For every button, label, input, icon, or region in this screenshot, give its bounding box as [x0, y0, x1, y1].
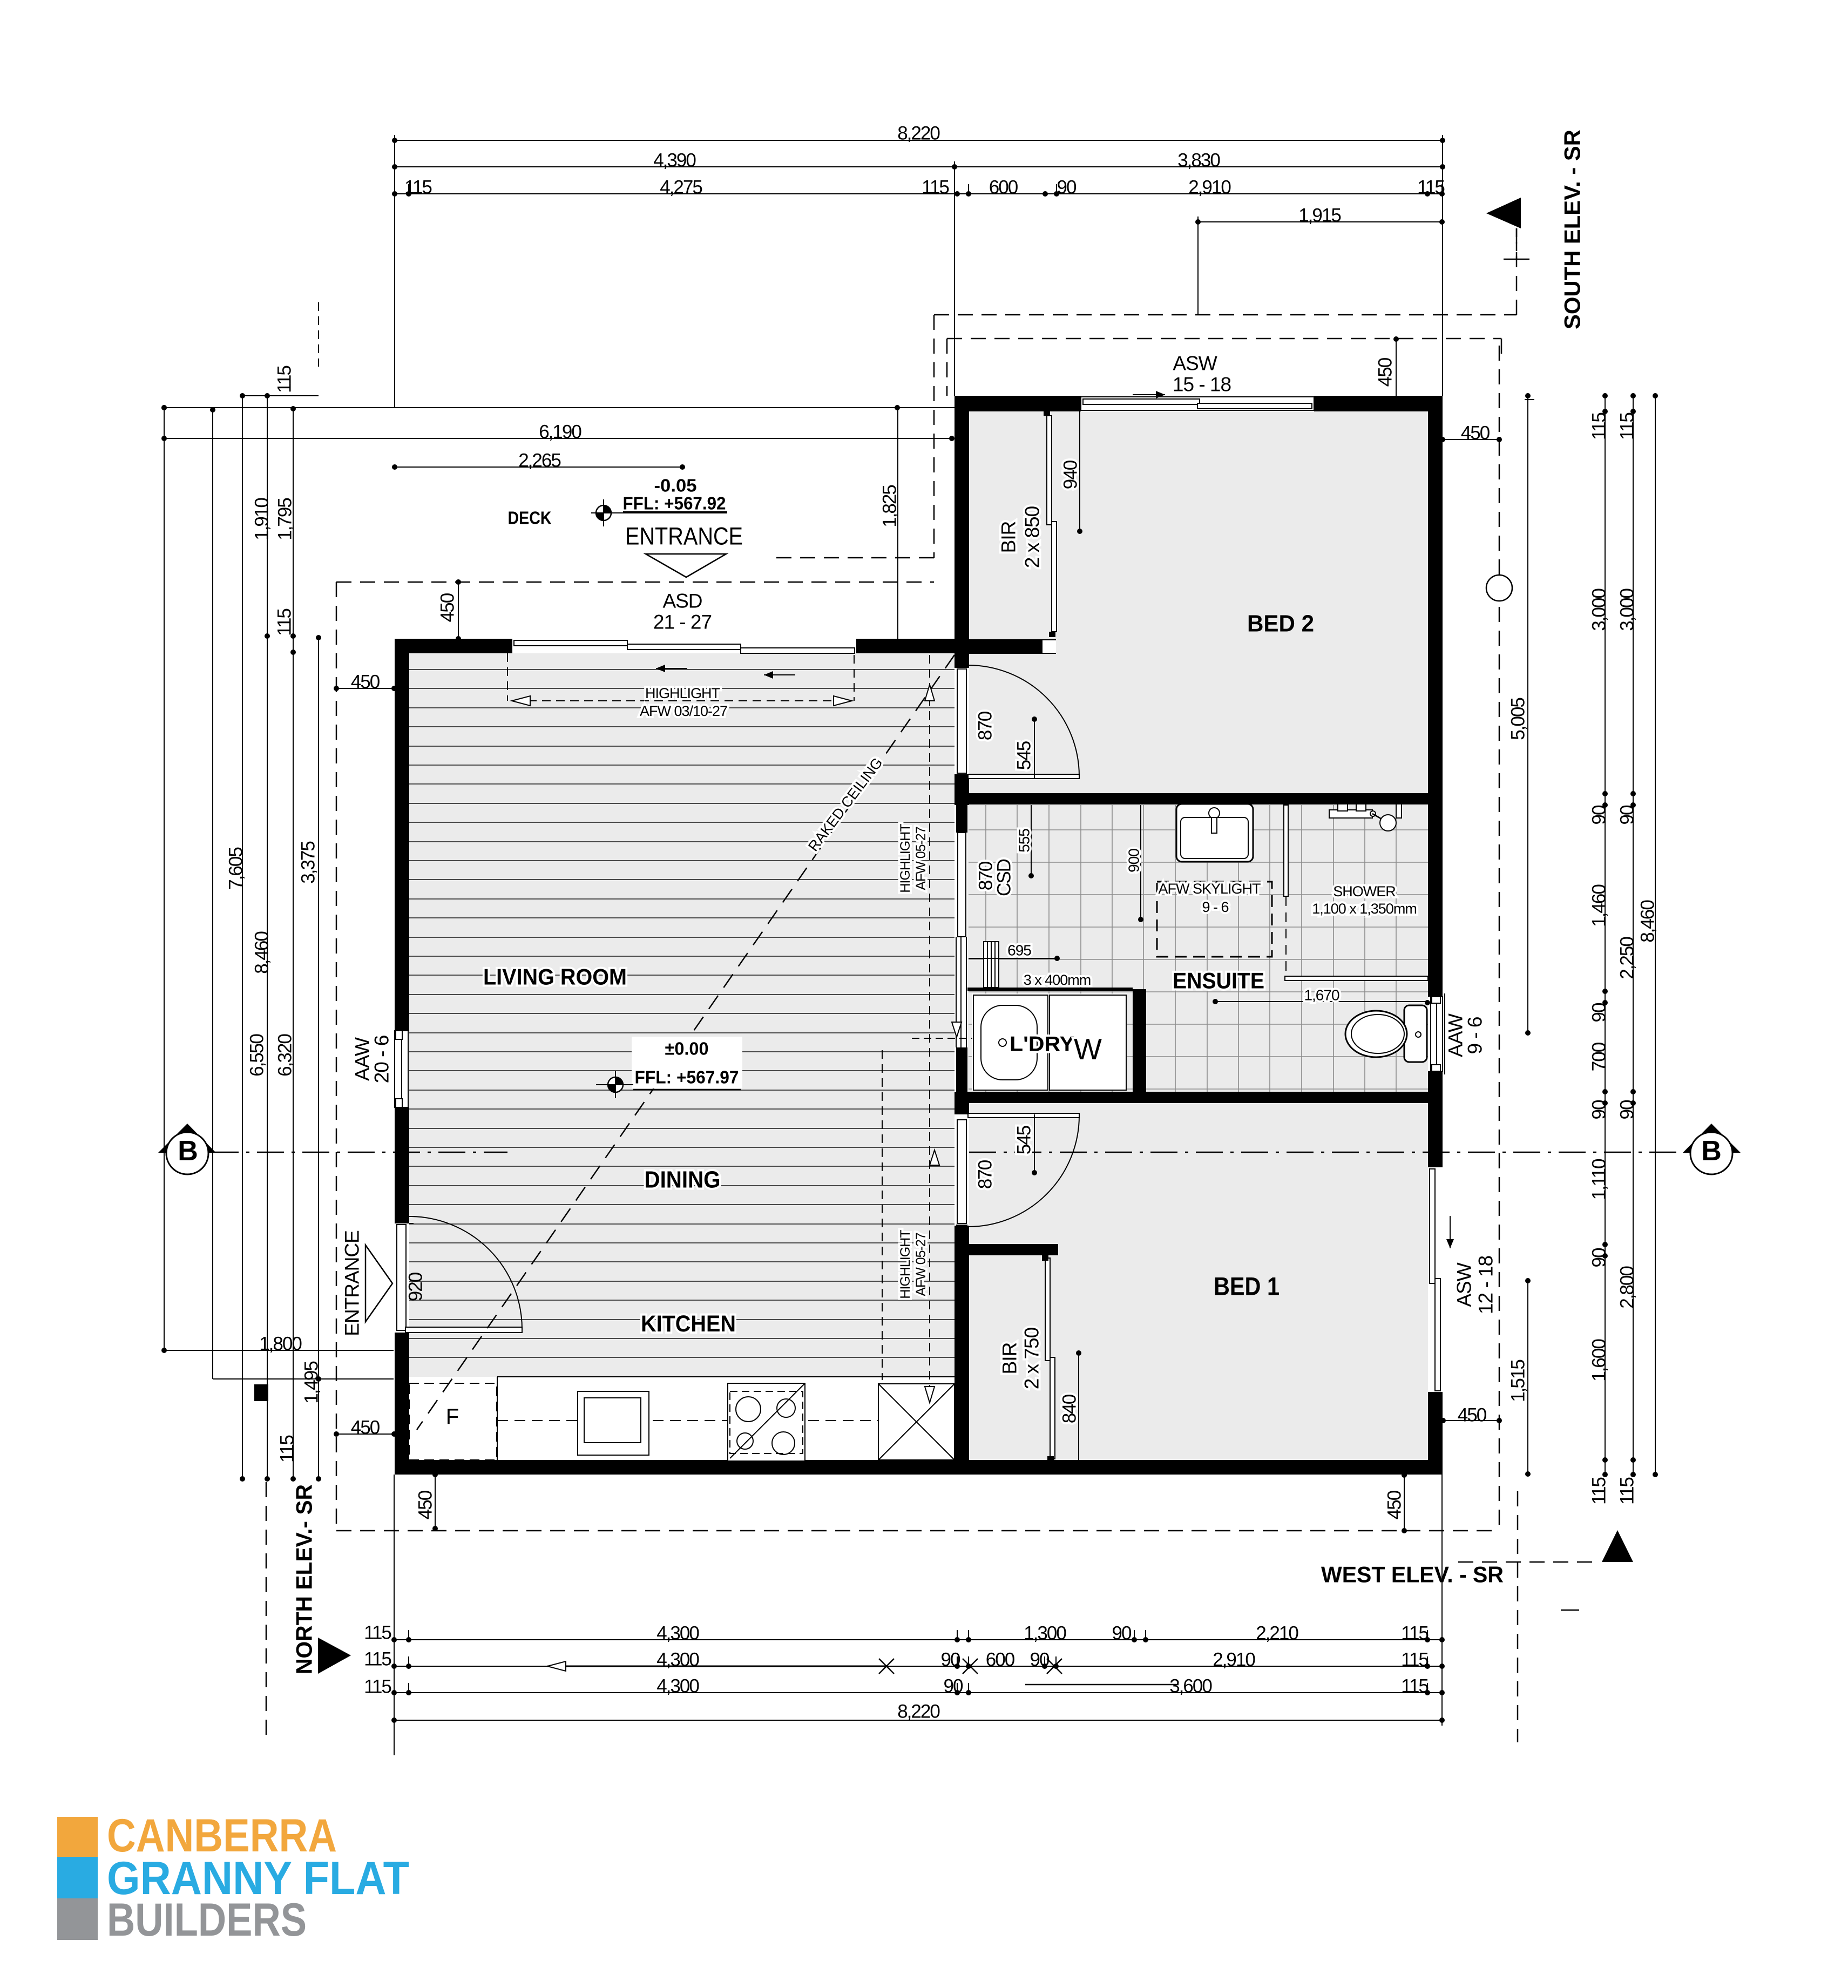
svg-text:90: 90: [1589, 1003, 1610, 1022]
svg-text:B: B: [178, 1135, 198, 1167]
svg-text:2,910: 2,910: [1188, 177, 1231, 198]
svg-text:3,375: 3,375: [298, 842, 319, 884]
svg-text:12 - 18: 12 - 18: [1475, 1256, 1497, 1314]
svg-text:FFL: +567.97: FFL: +567.97: [635, 1067, 739, 1087]
svg-text:450: 450: [351, 1417, 380, 1438]
svg-text:4,390: 4,390: [653, 150, 696, 171]
svg-text:8,460: 8,460: [1637, 900, 1659, 943]
svg-text:-0.05: -0.05: [654, 476, 697, 496]
svg-text:CSD: CSD: [994, 859, 1015, 896]
svg-text:555: 555: [1016, 829, 1033, 853]
svg-text:1,910: 1,910: [252, 498, 273, 540]
svg-text:115: 115: [277, 1436, 298, 1463]
svg-text:600: 600: [989, 177, 1018, 198]
svg-text:450: 450: [1461, 423, 1490, 444]
svg-text:90: 90: [1057, 177, 1077, 198]
svg-text:2 x 750: 2 x 750: [1021, 1327, 1043, 1389]
svg-text:1,915: 1,915: [1298, 205, 1341, 226]
svg-text:W: W: [1074, 1032, 1102, 1066]
svg-text:115: 115: [1589, 1478, 1610, 1505]
svg-text:115: 115: [1401, 1649, 1428, 1671]
svg-text:±0.00: ±0.00: [665, 1039, 709, 1059]
svg-text:AFW SKYLIGHT: AFW SKYLIGHT: [1158, 881, 1261, 897]
svg-text:115: 115: [1401, 1676, 1428, 1697]
svg-text:3 x 400mm: 3 x 400mm: [1024, 972, 1091, 988]
svg-text:7,605: 7,605: [226, 848, 247, 890]
svg-text:LIVING ROOM: LIVING ROOM: [483, 964, 627, 990]
svg-text:BED 1: BED 1: [1214, 1272, 1280, 1301]
svg-text:115: 115: [364, 1649, 391, 1670]
svg-text:90: 90: [1589, 805, 1610, 824]
svg-text:695: 695: [1007, 942, 1031, 959]
svg-text:20 - 6: 20 - 6: [371, 1036, 393, 1084]
svg-text:6,550: 6,550: [247, 1034, 268, 1077]
svg-text:4,300: 4,300: [656, 1623, 699, 1644]
svg-text:90: 90: [1589, 1248, 1610, 1267]
svg-text:3,830: 3,830: [1177, 150, 1220, 171]
svg-text:1,110: 1,110: [1589, 1159, 1610, 1200]
svg-text:9 - 6: 9 - 6: [1202, 899, 1228, 915]
svg-text:HIGHLIGHT: HIGHLIGHT: [898, 1230, 913, 1299]
svg-text:BED 2: BED 2: [1247, 611, 1314, 637]
svg-text:BIR: BIR: [998, 522, 1020, 553]
svg-text:90: 90: [1617, 805, 1638, 824]
svg-text:1,670: 1,670: [1304, 987, 1339, 1004]
svg-text:B: B: [1701, 1135, 1722, 1167]
svg-text:4,275: 4,275: [660, 177, 702, 198]
svg-text:6,320: 6,320: [275, 1034, 296, 1077]
svg-text:90: 90: [1589, 1100, 1610, 1119]
svg-text:450: 450: [415, 1490, 436, 1519]
svg-text:700: 700: [1589, 1042, 1610, 1071]
svg-text:2,210: 2,210: [1256, 1623, 1298, 1644]
svg-text:90: 90: [1112, 1623, 1132, 1644]
svg-text:450: 450: [1375, 357, 1396, 387]
svg-text:115: 115: [1617, 413, 1638, 440]
svg-text:8,220: 8,220: [897, 1701, 940, 1722]
svg-text:AFW 03/10-27: AFW 03/10-27: [640, 703, 727, 719]
svg-text:FFL: +567.92: FFL: +567.92: [623, 493, 726, 513]
svg-text:545: 545: [1014, 1126, 1035, 1154]
svg-text:HIGHLIGHT: HIGHLIGHT: [645, 685, 720, 701]
svg-text:BIR: BIR: [999, 1343, 1021, 1375]
svg-text:1,600: 1,600: [1589, 1339, 1610, 1382]
svg-text:115: 115: [1401, 1623, 1428, 1644]
svg-text:1,300: 1,300: [1024, 1623, 1066, 1644]
svg-text:450: 450: [437, 593, 458, 622]
svg-text:115: 115: [364, 1622, 391, 1644]
svg-text:SHOWER: SHOWER: [1333, 883, 1396, 900]
svg-text:SOUTH ELEV. - SR: SOUTH ELEV. - SR: [1560, 130, 1585, 329]
svg-text:AAW: AAW: [1445, 1013, 1467, 1057]
svg-text:BUILDERS: BUILDERS: [107, 1894, 307, 1946]
svg-text:1,100 x 1,350mm: 1,100 x 1,350mm: [1312, 901, 1417, 917]
svg-text:5,005: 5,005: [1508, 698, 1529, 740]
svg-text:ASW: ASW: [1173, 353, 1217, 375]
svg-text:2,910: 2,910: [1213, 1649, 1255, 1671]
svg-text:1,795: 1,795: [275, 498, 296, 540]
svg-text:90: 90: [944, 1676, 963, 1697]
svg-text:1,495: 1,495: [301, 1362, 322, 1404]
svg-text:AFW 05-27: AFW 05-27: [913, 827, 929, 890]
svg-text:NORTH ELEV.- SR: NORTH ELEV.- SR: [292, 1484, 317, 1674]
svg-text:HIGHLIGHT: HIGHLIGHT: [898, 824, 913, 893]
svg-text:1,515: 1,515: [1508, 1360, 1529, 1402]
svg-text:450: 450: [1384, 1490, 1405, 1519]
svg-text:AAW: AAW: [351, 1037, 374, 1081]
svg-text:115: 115: [274, 366, 295, 393]
svg-text:545: 545: [1014, 741, 1035, 770]
svg-text:1,825: 1,825: [879, 485, 901, 528]
svg-text:2,265: 2,265: [518, 450, 560, 471]
svg-text:ENTRANCE: ENTRANCE: [341, 1230, 363, 1336]
svg-text:1,800: 1,800: [259, 1334, 302, 1355]
svg-text:90: 90: [1030, 1649, 1050, 1671]
svg-text:2 x 850: 2 x 850: [1021, 506, 1044, 568]
svg-text:920: 920: [405, 1272, 427, 1301]
svg-text:115: 115: [404, 177, 431, 198]
svg-text:1,460: 1,460: [1589, 884, 1610, 927]
svg-text:WEST ELEV. - SR: WEST ELEV. - SR: [1321, 1562, 1504, 1587]
svg-text:DINING: DINING: [645, 1167, 721, 1193]
svg-text:AFW 05-27: AFW 05-27: [913, 1233, 929, 1296]
svg-text:ASD: ASD: [662, 590, 702, 612]
svg-text:870: 870: [975, 711, 996, 740]
svg-text:6,190: 6,190: [539, 422, 581, 443]
svg-text:DECK: DECK: [508, 508, 552, 528]
svg-text:15 - 18: 15 - 18: [1173, 374, 1231, 396]
svg-text:450: 450: [351, 672, 380, 693]
svg-text:90: 90: [1617, 1100, 1638, 1119]
svg-text:2,250: 2,250: [1617, 937, 1638, 979]
svg-text:2,800: 2,800: [1617, 1266, 1638, 1309]
svg-text:3,600: 3,600: [1169, 1676, 1212, 1697]
svg-text:8,460: 8,460: [252, 931, 273, 974]
svg-text:21 - 27: 21 - 27: [653, 611, 712, 633]
svg-text:8,220: 8,220: [897, 123, 940, 144]
svg-text:600: 600: [986, 1649, 1015, 1671]
svg-text:115: 115: [274, 609, 295, 636]
svg-text:3,000: 3,000: [1589, 589, 1610, 631]
svg-text:90: 90: [941, 1649, 960, 1671]
svg-text:ASW: ASW: [1453, 1262, 1475, 1307]
svg-text:115: 115: [1589, 413, 1610, 440]
svg-text:3,000: 3,000: [1617, 589, 1638, 631]
svg-text:ENSUITE: ENSUITE: [1173, 968, 1264, 993]
svg-text:L'DRY: L'DRY: [1010, 1033, 1074, 1056]
svg-text:KITCHEN: KITCHEN: [641, 1311, 736, 1337]
svg-text:4,300: 4,300: [656, 1676, 699, 1697]
svg-text:115: 115: [1417, 177, 1444, 198]
svg-text:4,300: 4,300: [656, 1649, 699, 1671]
svg-text:115: 115: [922, 177, 949, 198]
svg-text:450: 450: [1458, 1405, 1487, 1426]
svg-text:840: 840: [1059, 1394, 1080, 1423]
svg-text:115: 115: [364, 1676, 391, 1698]
svg-text:940: 940: [1060, 460, 1081, 489]
svg-text:115: 115: [1617, 1478, 1638, 1505]
svg-text:870: 870: [975, 1160, 996, 1189]
svg-text:900: 900: [1126, 849, 1142, 873]
svg-text:9 - 6: 9 - 6: [1464, 1017, 1486, 1054]
svg-text:ENTRANCE: ENTRANCE: [625, 523, 743, 550]
svg-text:F: F: [446, 1405, 459, 1429]
